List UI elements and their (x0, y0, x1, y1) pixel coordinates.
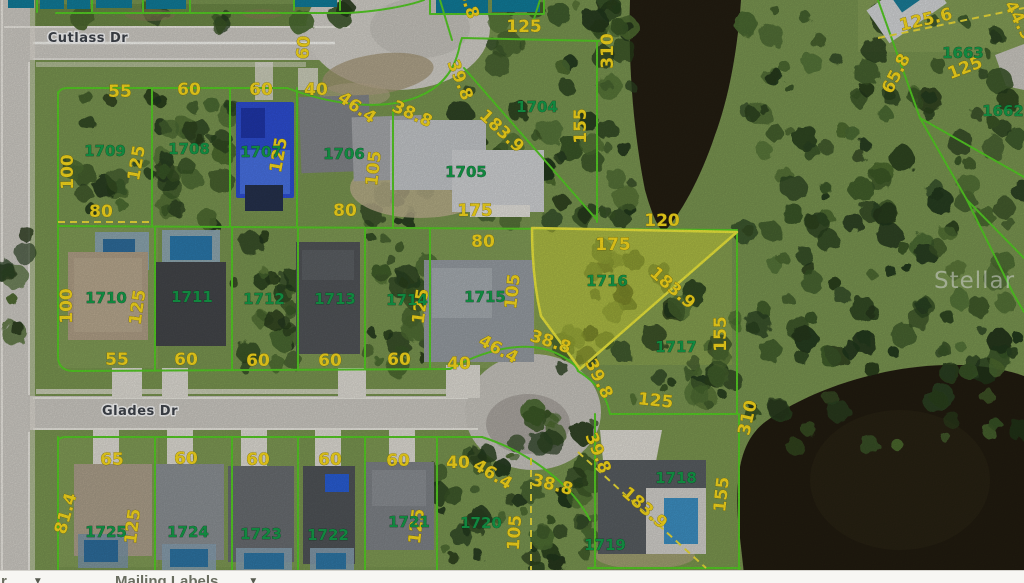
toolbar-dropdown-mailing-labels[interactable]: Mailing Labels▼ (115, 573, 258, 583)
watermark: Stellar MLS (934, 268, 1024, 294)
bottom-toolbar: r▼ Mailing Labels▼ (0, 570, 1024, 583)
map-viewport: 55606040601008012512546.438.839.8183.938… (0, 0, 1024, 583)
caret-down-icon: ▼ (248, 576, 258, 583)
photo-grain-overlay (0, 0, 1024, 583)
mailing-labels-label: Mailing Labels (115, 573, 218, 583)
toolbar-dropdown-partial-label: r (1, 573, 7, 583)
parcel-map-aerial[interactable]: 55606040601008012512546.438.839.8183.938… (0, 0, 1024, 583)
caret-down-icon: ▼ (33, 576, 43, 583)
toolbar-dropdown-partial[interactable]: r▼ (1, 573, 43, 583)
